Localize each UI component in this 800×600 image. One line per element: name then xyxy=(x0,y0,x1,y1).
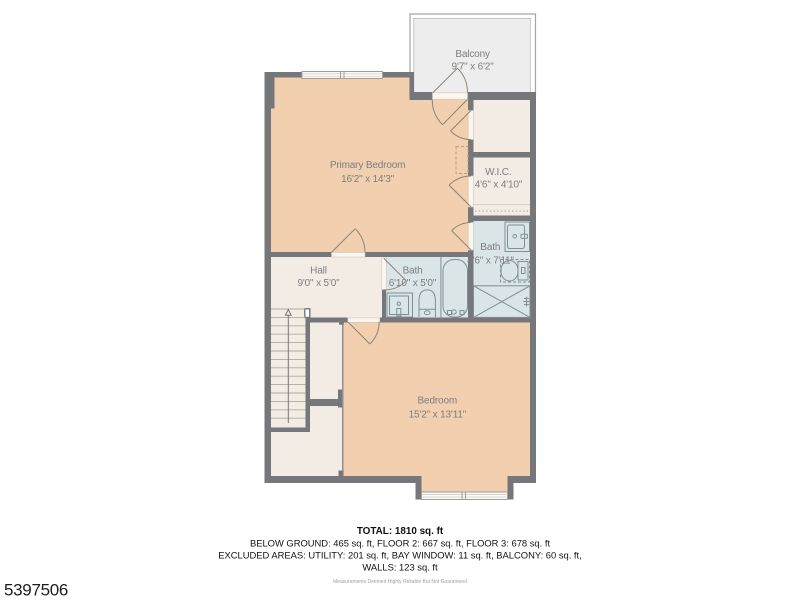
svg-text:Measurements Deemed Highly Rel: Measurements Deemed Highly Reliable But … xyxy=(333,579,467,585)
svg-text:TOTAL: 1810 sq. ft: TOTAL: 1810 sq. ft xyxy=(357,526,444,537)
svg-text:9'0" x 5'0": 9'0" x 5'0" xyxy=(297,278,340,289)
svg-text:Bath: Bath xyxy=(403,266,423,277)
svg-text:BELOW GROUND: 465 sq. ft, FLOO: BELOW GROUND: 465 sq. ft, FLOOR 2: 667 s… xyxy=(250,538,551,549)
svg-text:16'2" x 14'3": 16'2" x 14'3" xyxy=(341,174,394,185)
svg-text:Primary Bedroom: Primary Bedroom xyxy=(330,160,406,171)
svg-text:Balcony: Balcony xyxy=(455,49,490,60)
svg-text:4'6" x 4'10": 4'6" x 4'10" xyxy=(475,180,523,191)
svg-text:6'10" x 5'0": 6'10" x 5'0" xyxy=(389,278,437,289)
svg-text:EXCLUDED AREAS: UTILITY: 201 s: EXCLUDED AREAS: UTILITY: 201 sq. ft, BAY… xyxy=(218,550,582,561)
svg-text:Bath: Bath xyxy=(480,242,500,253)
svg-text:W.I.C.: W.I.C. xyxy=(485,167,511,178)
svg-text:5397506: 5397506 xyxy=(4,581,68,600)
svg-text:Bedroom: Bedroom xyxy=(418,396,458,407)
svg-text:15'2" x 13'11": 15'2" x 13'11" xyxy=(409,409,467,420)
svg-text:9'7" x 6'2": 9'7" x 6'2" xyxy=(452,61,495,72)
svg-text:WALLS: 123 sq. ft: WALLS: 123 sq. ft xyxy=(362,562,438,573)
svg-text:Hall: Hall xyxy=(310,266,327,277)
svg-text:4'6" x 7'11": 4'6" x 7'11" xyxy=(467,256,514,267)
